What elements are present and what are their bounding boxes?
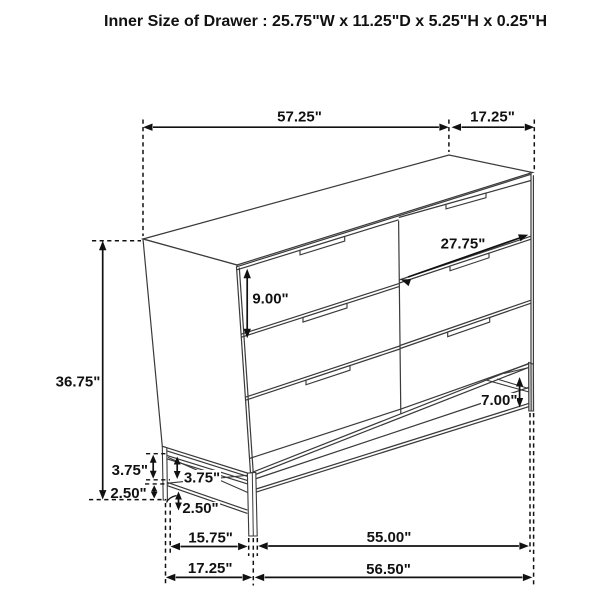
svg-text:7.00": 7.00" [481, 392, 517, 409]
svg-text:3.75": 3.75" [184, 470, 220, 487]
svg-text:17.25": 17.25" [188, 560, 233, 577]
svg-text:55.00": 55.00" [367, 529, 412, 546]
svg-text:9.00": 9.00" [252, 291, 288, 308]
svg-text:36.75": 36.75" [56, 374, 101, 391]
svg-text:3.75": 3.75" [112, 462, 148, 479]
svg-text:2.50": 2.50" [182, 500, 218, 517]
svg-text:2.50": 2.50" [110, 485, 146, 502]
svg-text:56.50": 56.50" [366, 561, 411, 578]
svg-text:57.25": 57.25" [277, 109, 322, 126]
svg-text:27.75": 27.75" [441, 236, 486, 253]
svg-text:15.75": 15.75" [188, 530, 233, 547]
svg-text:17.25": 17.25" [470, 109, 515, 126]
